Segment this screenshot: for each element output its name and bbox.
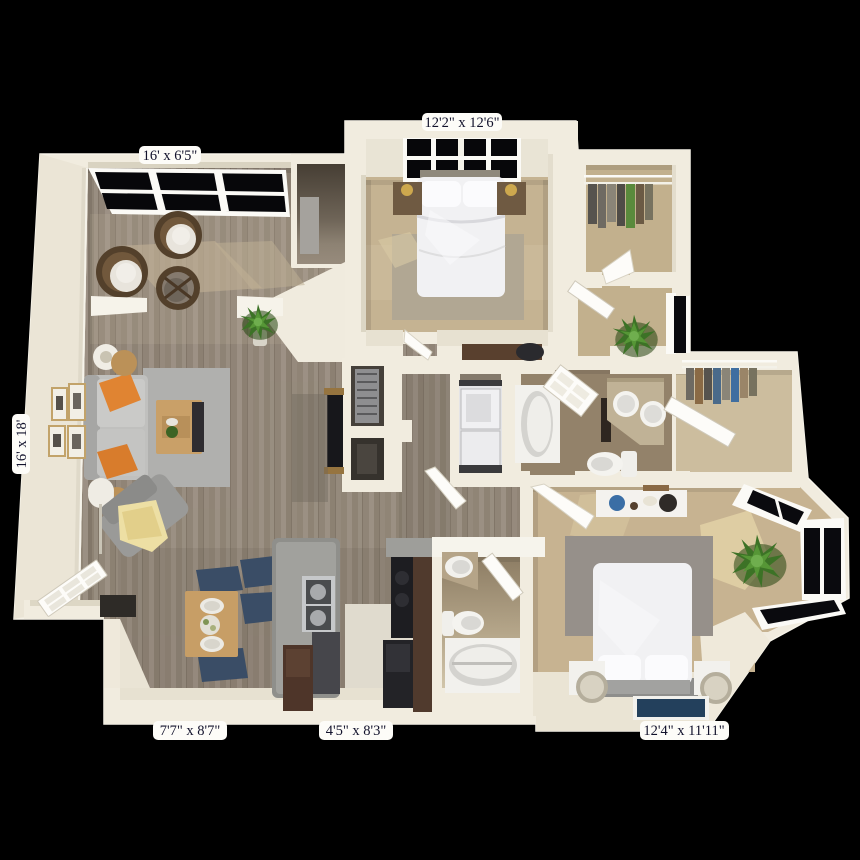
- svg-text:16' x 18': 16' x 18': [14, 420, 30, 469]
- svg-text:4'5" x 8'3": 4'5" x 8'3": [326, 723, 387, 739]
- svg-text:7'7" x 8'7": 7'7" x 8'7": [160, 723, 221, 739]
- svg-text:16' x 6'5": 16' x 6'5": [143, 148, 198, 164]
- svg-text:12'4" x 11'11": 12'4" x 11'11": [643, 723, 724, 739]
- svg-text:12'2" x 12'6": 12'2" x 12'6": [424, 115, 499, 131]
